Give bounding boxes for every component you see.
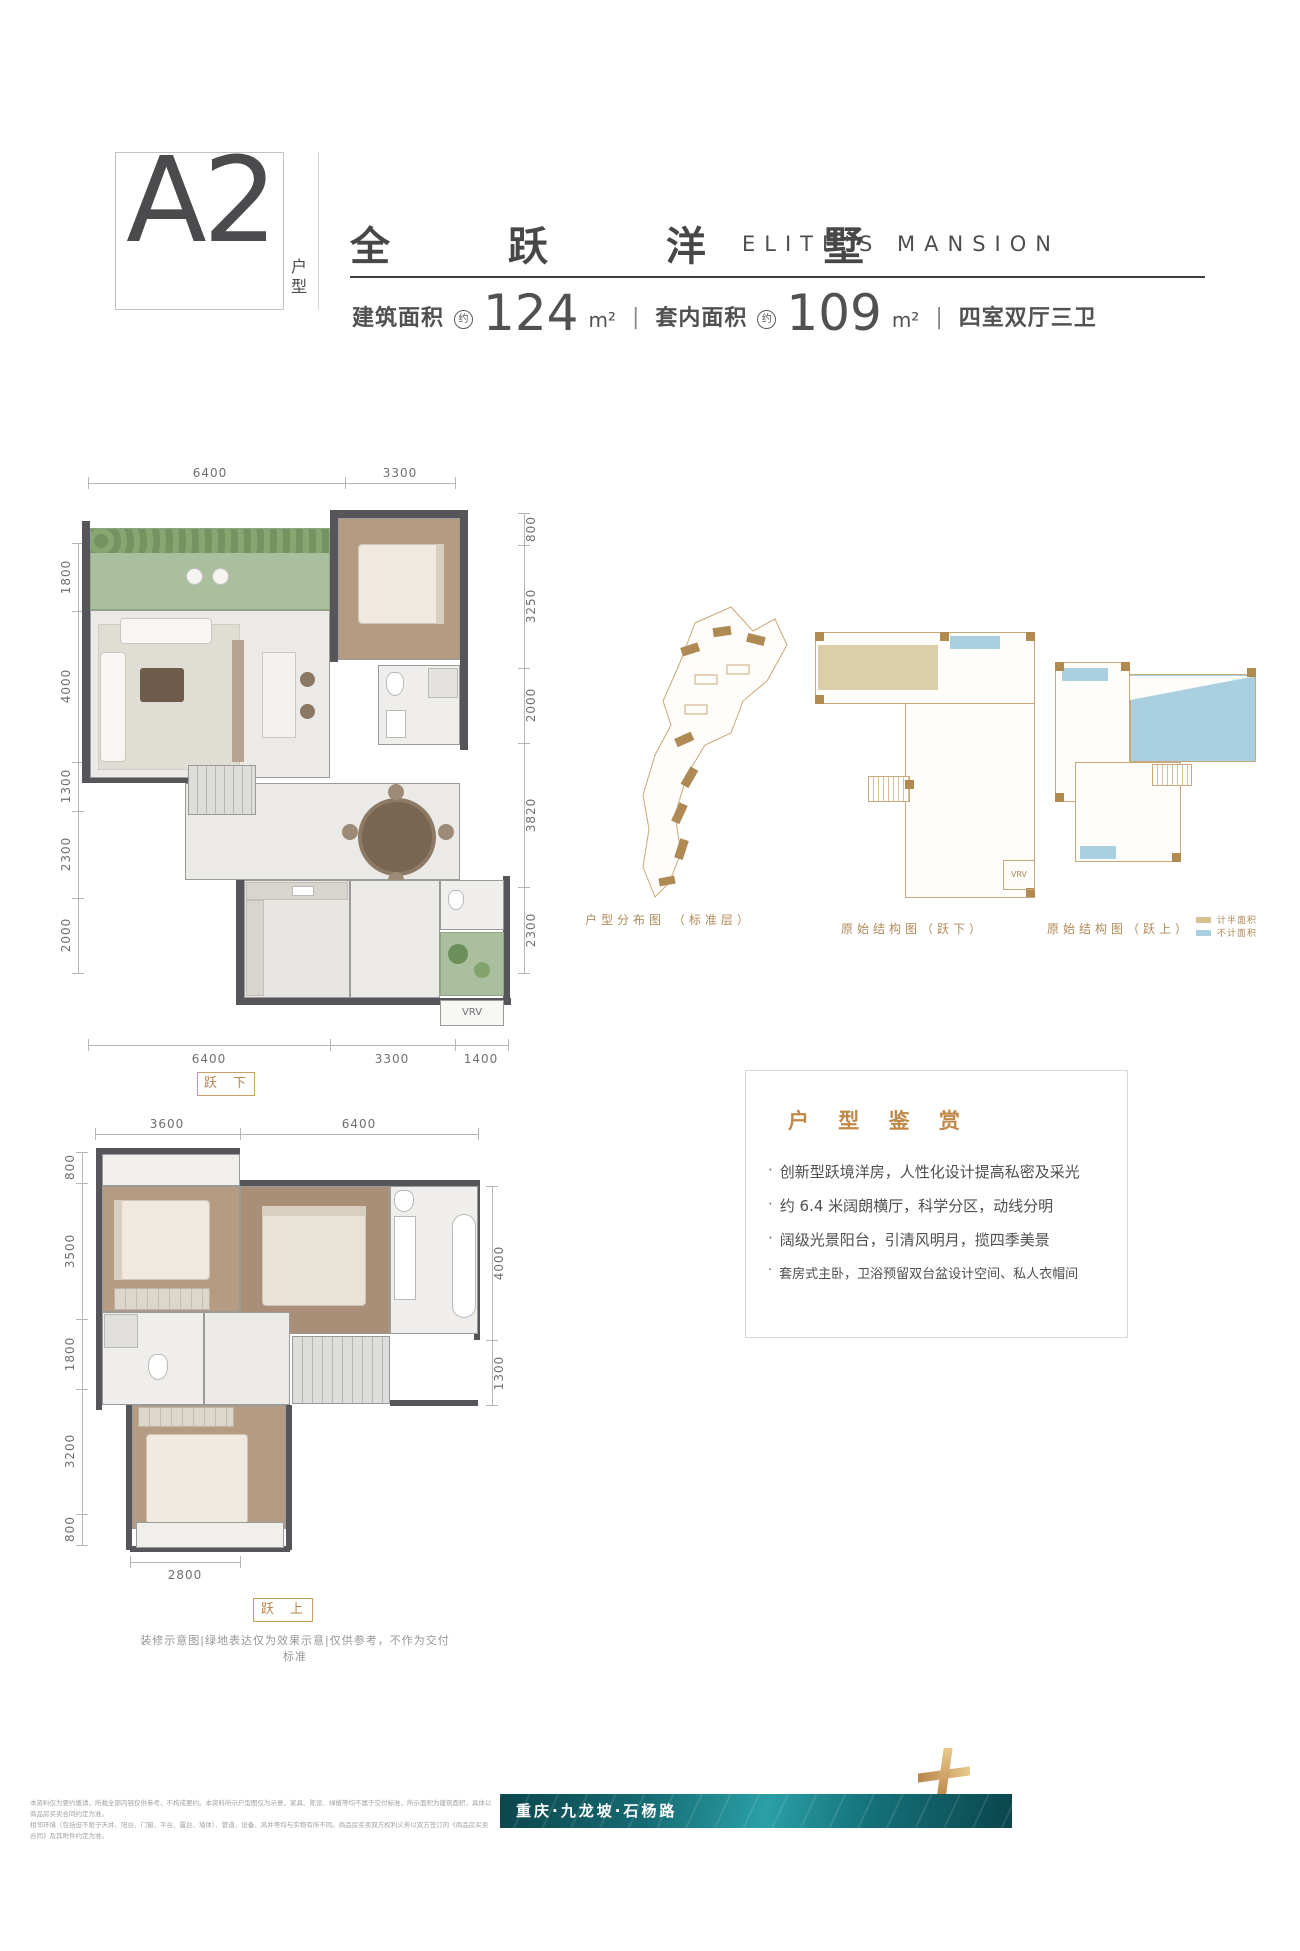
structure-window [1080, 846, 1116, 859]
dim-label: 3500 [63, 1228, 77, 1274]
bullet-text: 套房式主卧，卫浴预留双台盆设计空间、私人衣帽间 [779, 1263, 1078, 1282]
structure-stairs [868, 776, 910, 802]
structure-pool-diagonal [1130, 676, 1256, 700]
legend-label: 计半面积 [1217, 913, 1257, 926]
dim-tick [518, 973, 530, 974]
bullet-marker: · [768, 1263, 772, 1278]
appreciation-bullet: · 阔级光景阳台，引清风明月，揽四季美景 [768, 1229, 1113, 1250]
wall-segment [460, 510, 468, 750]
header-rule [350, 276, 1205, 278]
terrace-chair [186, 568, 203, 585]
appreciation-bullet: · 套房式主卧，卫浴预留双台盆设计空间、私人衣帽间 [768, 1263, 1113, 1282]
bed-headboard [114, 1200, 122, 1280]
dim-tick [240, 1128, 241, 1140]
structure-wall [940, 632, 949, 641]
dim-label: 800 [63, 1144, 77, 1190]
bullet-text: 创新型跃境洋房，人性化设计提高私密及采光 [780, 1161, 1080, 1182]
dim-tick [455, 477, 456, 489]
dim-tick [518, 668, 530, 669]
bed [114, 1200, 210, 1280]
disclaimer-line: 相邻环境（包括但不限于天井、阳台、门窗、平台、露台、墙体）、管道、设备、风井等均… [30, 1820, 492, 1842]
structure-wall [1026, 632, 1035, 641]
bullet-marker: · [768, 1195, 773, 1213]
structure-lower-label: 原始结构图（跃下） [838, 920, 988, 937]
dim-label: 2300 [524, 907, 538, 953]
shower [428, 668, 458, 698]
approx-badge: 约 [454, 310, 473, 329]
unit-code: A2 [126, 131, 274, 269]
wall-segment [503, 876, 510, 1002]
terrace-plants [91, 529, 329, 553]
wall-segment [82, 521, 90, 782]
legend-swatch-excluded-area [1196, 930, 1211, 936]
unit-type-label: 户型 [289, 258, 307, 298]
stairs [188, 765, 256, 815]
dim-label: 1400 [431, 1052, 531, 1066]
built-area-label: 建筑面积 [352, 300, 444, 336]
plant [474, 962, 490, 978]
distribution-diagram [635, 605, 795, 905]
legend-label: 不计面积 [1217, 926, 1257, 939]
structure-wall [1121, 662, 1130, 671]
vrv-box: VRV [440, 1000, 504, 1026]
dim-tick [518, 887, 530, 888]
dim-label: 3200 [63, 1428, 77, 1474]
location-text: 重庆·九龙坡·石杨路 [500, 1794, 1012, 1828]
coffee-table [140, 668, 184, 702]
brand-logo [918, 1748, 970, 1800]
bullet-marker: · [768, 1161, 773, 1179]
structure-wall [1055, 662, 1064, 671]
dim-tick [330, 1039, 331, 1051]
wall-segment [286, 1405, 292, 1550]
legend-item: 不计面积 [1196, 926, 1257, 939]
dim-label: 3300 [342, 1052, 442, 1066]
area-unit: m² [588, 308, 616, 336]
footer-disclaimer: 本资料仅为要约邀请，所载全部内容仅供参考，不构成要约。本资料所示户型图仅为示意，… [30, 1798, 492, 1842]
dim-label: 2000 [524, 682, 538, 728]
inner-area-value: 109 [786, 290, 881, 336]
dim-tick [478, 1128, 479, 1140]
page: A2 户型 全 跃 洋 墅 ELITE'S MANSION 建筑面积 约 124… [0, 0, 1300, 1951]
dim-line [82, 1152, 83, 1545]
dim-line [78, 543, 79, 973]
dining-table [358, 798, 436, 876]
kitchen-sink [292, 886, 314, 896]
toilet [148, 1354, 168, 1380]
appreciation-bullet: · 创新型跃境洋房，人性化设计提高私密及采光 [768, 1161, 1113, 1182]
dining-chair [388, 784, 404, 800]
balcony [102, 1154, 240, 1186]
bullet-text: 约 6.4 米阔朗横厅，科学分区，动线分明 [780, 1195, 1053, 1216]
dim-label: 6400 [159, 1052, 259, 1066]
dim-label: 1300 [59, 763, 73, 809]
dim-tick [486, 1186, 498, 1187]
dim-tick [130, 1556, 131, 1568]
dim-line [88, 483, 455, 484]
built-area-value: 124 [483, 290, 578, 336]
shower [104, 1314, 138, 1348]
dim-tick [76, 1152, 88, 1153]
stool [300, 672, 315, 687]
dim-label: 1800 [59, 554, 73, 600]
bathtub [452, 1214, 476, 1318]
dim-tick [486, 1405, 498, 1406]
approx-badge: 约 [757, 310, 776, 329]
dim-tick [240, 1556, 241, 1568]
dim-tick [76, 1183, 88, 1184]
dim-label: 6400 [309, 1117, 409, 1131]
structure-vrv: VRV [1003, 860, 1035, 890]
courtyard [440, 932, 504, 996]
dim-label: 3600 [117, 1117, 217, 1131]
structure-wall [815, 632, 824, 641]
stairs [292, 1336, 390, 1404]
bed [358, 544, 444, 624]
kitchen-island [262, 652, 296, 738]
area-summary: 建筑面积 约 124 m² | 套内面积 约 109 m² | 四室双厅三卫 [352, 288, 1097, 336]
structure-fill [818, 645, 938, 690]
wall-segment [330, 514, 338, 662]
bullet-marker: · [768, 1229, 773, 1247]
structure-wall [815, 695, 824, 704]
structure-window [950, 636, 1000, 649]
dim-label: 3300 [350, 466, 450, 480]
dim-tick [72, 973, 84, 974]
upper-jump-tag: 跃 上 [253, 1598, 313, 1622]
inner-area-label: 套内面积 [655, 300, 747, 336]
structure-wall [1172, 853, 1181, 862]
dim-tick [88, 1039, 89, 1051]
appreciation-box: 户 型 鉴 赏 · 创新型跃境洋房，人性化设计提高私密及采光 · 约 6.4 米… [745, 1070, 1128, 1338]
double-vanity [394, 1216, 416, 1300]
disclaimer-line: 本资料仅为要约邀请，所载全部内容仅供参考，不构成要约。本资料所示户型图仅为示意，… [30, 1798, 492, 1820]
dim-label: 4000 [492, 1240, 506, 1286]
dim-tick [76, 1319, 88, 1320]
tv-wall [232, 640, 244, 762]
bed [146, 1434, 248, 1524]
dim-label: 1300 [492, 1350, 506, 1396]
lower-jump-tag: 跃 下 [197, 1072, 255, 1096]
divider: | [929, 305, 948, 336]
bullet-text: 阔级光景阳台，引清风明月，揽四季美景 [780, 1229, 1050, 1250]
legend-swatch-half-area [1196, 917, 1211, 923]
room-hall [204, 1312, 290, 1405]
location-banner: 重庆·九龙坡·石杨路 [500, 1794, 1012, 1828]
dim-label: 2300 [59, 831, 73, 877]
toilet [386, 672, 404, 696]
bed-headboard [436, 544, 444, 624]
plan-note: 装修示意图|绿地表达仅为效果示意|仅供参考，不作为交付标准 [140, 1632, 450, 1664]
vanity [386, 710, 406, 738]
structure-window [1062, 668, 1108, 681]
page-title-en: ELITE'S MANSION [742, 232, 1060, 256]
dim-tick [345, 477, 346, 489]
rooms-text: 四室双厅三卫 [959, 300, 1097, 336]
stool [300, 704, 315, 719]
dim-label: 6400 [160, 466, 260, 480]
dim-label: 1800 [63, 1331, 77, 1377]
bed-headboard [262, 1206, 366, 1216]
appreciation-title: 户 型 鉴 赏 [788, 1105, 971, 1135]
toilet [394, 1190, 414, 1212]
bed [262, 1206, 366, 1306]
legend-item: 计半面积 [1196, 913, 1257, 926]
dim-line [95, 1134, 478, 1135]
dim-tick [508, 1039, 509, 1051]
dim-label: 3250 [524, 583, 538, 629]
wardrobe [138, 1407, 234, 1427]
dim-tick [95, 1128, 96, 1140]
wall-segment [330, 510, 468, 518]
dim-line [130, 1562, 240, 1563]
structure-wall [1247, 668, 1256, 677]
plant [448, 944, 468, 964]
dim-tick [76, 1514, 88, 1515]
dim-tick [72, 811, 84, 812]
dim-tick [518, 743, 530, 744]
appreciation-bullet: · 约 6.4 米阔朗横厅，科学分区，动线分明 [768, 1195, 1113, 1216]
balcony [136, 1522, 284, 1548]
dim-label: 2800 [135, 1568, 235, 1582]
toilet [448, 890, 464, 910]
header-divider-line [318, 152, 319, 310]
wall-segment [236, 876, 244, 1004]
dim-tick [72, 898, 84, 899]
sofa [100, 652, 126, 762]
wardrobe [114, 1288, 210, 1310]
dim-label: 4000 [59, 663, 73, 709]
dim-line [88, 1045, 508, 1046]
wall-segment [390, 1400, 478, 1406]
dim-tick [88, 477, 89, 489]
structure-stairs [1152, 764, 1192, 786]
dim-tick [76, 1545, 88, 1546]
dim-tick [486, 1340, 498, 1341]
room-hall [350, 880, 440, 998]
dim-label: 3820 [524, 792, 538, 838]
sofa [120, 618, 212, 644]
dim-tick [455, 1039, 456, 1051]
dim-label: 800 [524, 506, 538, 552]
unit-code-box: A2 [115, 152, 284, 310]
terrace-chair [212, 568, 229, 585]
area-unit: m² [892, 308, 920, 336]
kitchen-counter [246, 900, 264, 996]
distribution-label: 户型分布图 （标准层） [585, 911, 745, 928]
dim-label: 2000 [59, 912, 73, 958]
divider: | [626, 305, 645, 336]
dim-label: 800 [63, 1506, 77, 1552]
structure-upper-label: 原始结构图（跃上） [1044, 920, 1194, 937]
dim-tick [76, 1389, 88, 1390]
structure-wall [1055, 793, 1064, 802]
structure-wall [905, 780, 914, 789]
dining-chair [342, 824, 358, 840]
dining-chair [438, 824, 454, 840]
